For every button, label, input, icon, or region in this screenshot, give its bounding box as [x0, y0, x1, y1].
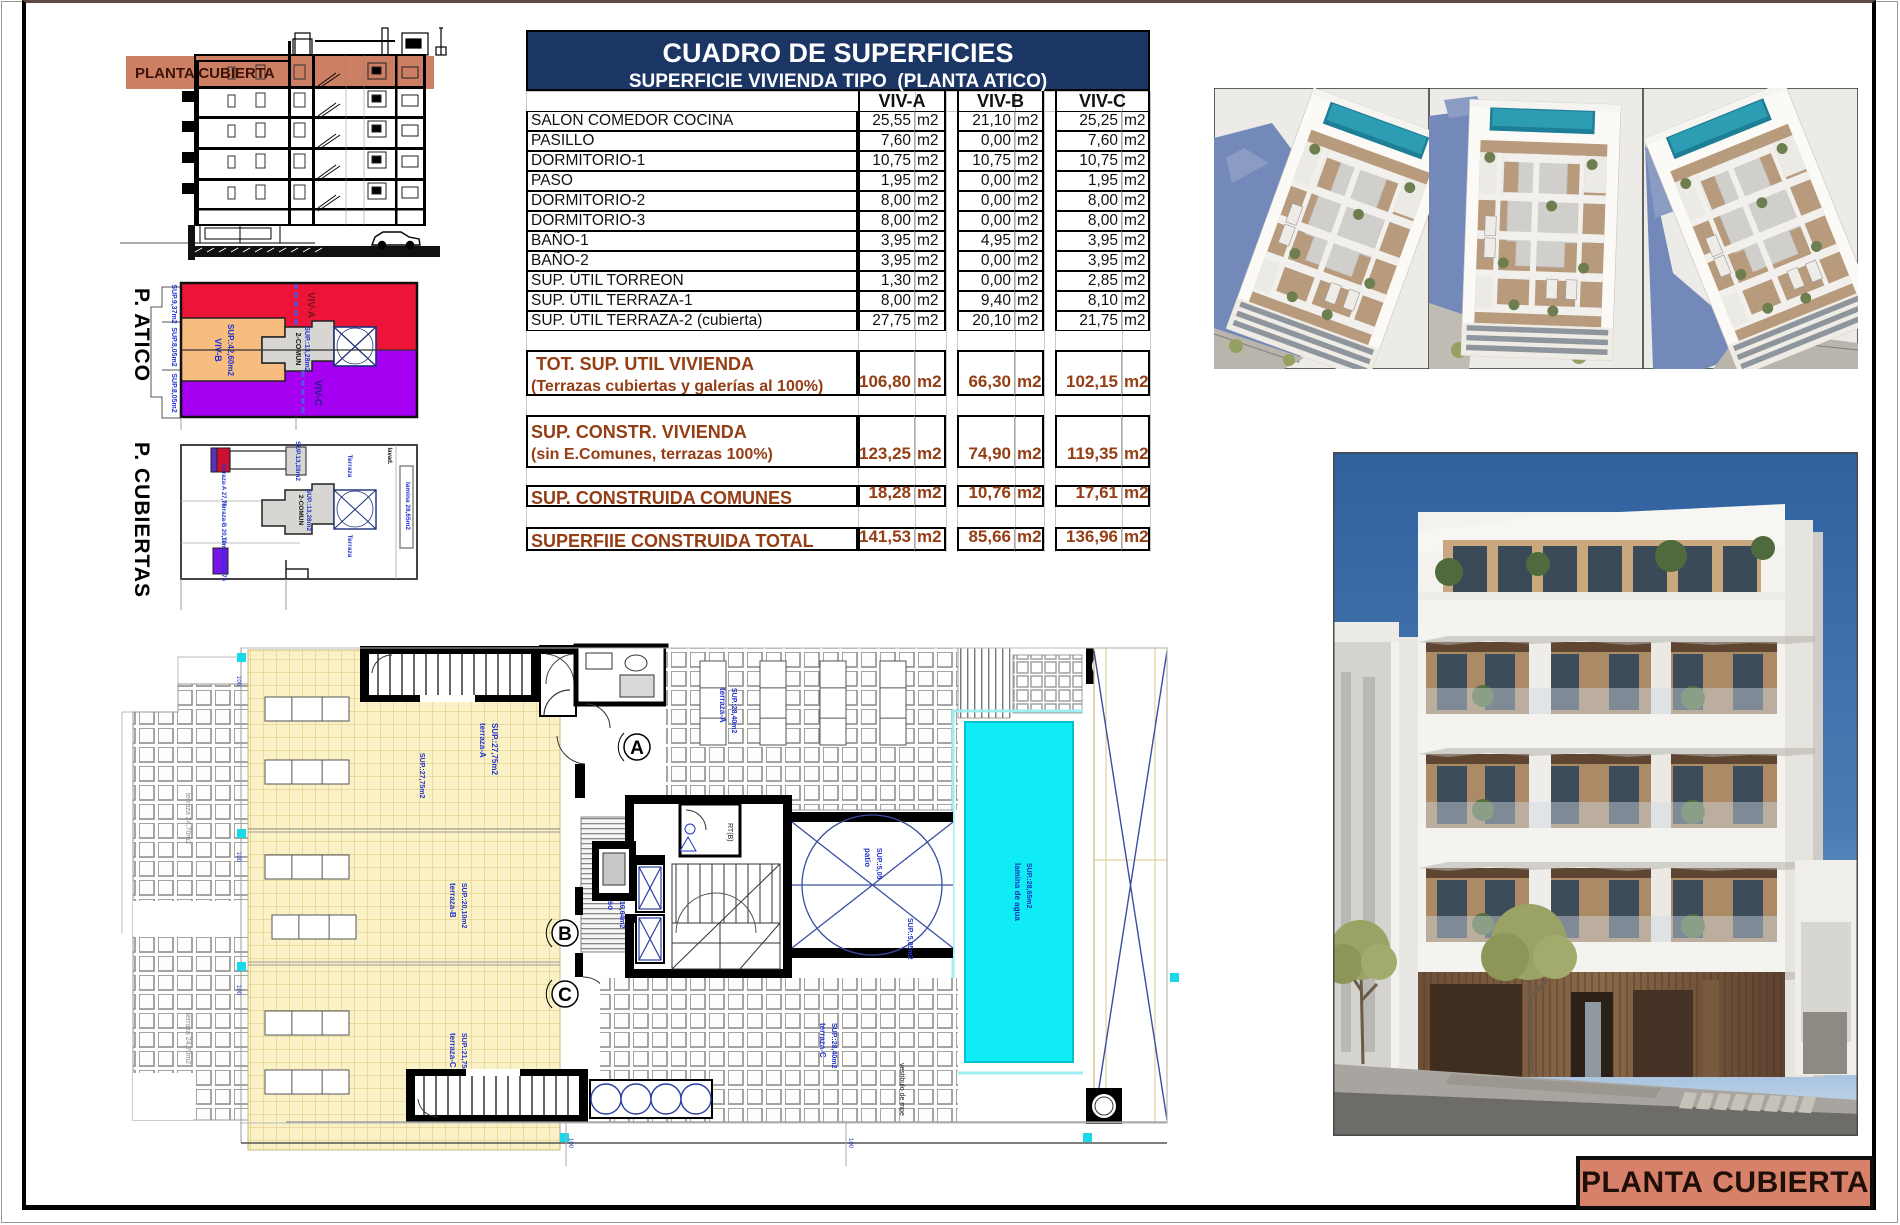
svg-text:terraza-C: terraza-C	[448, 1033, 457, 1068]
svg-text:SUP.8,05m2: SUP.8,05m2	[170, 373, 177, 412]
svg-text:C: C	[558, 985, 572, 1006]
svg-text:P. CUBIERTAS: P. CUBIERTAS	[130, 442, 153, 598]
svg-text:SUP.:27,75m2: SUP.:27,75m2	[490, 723, 499, 775]
svg-text:SUP.8,05m2: SUP.8,05m2	[170, 327, 177, 366]
svg-text:SUP.9,37m2: SUP.9,37m2	[170, 284, 177, 323]
svg-text:SUP.:27,75m2: SUP.:27,75m2	[418, 753, 425, 799]
svg-text:SUP.:5,05m2: SUP.:5,05m2	[906, 918, 913, 960]
svg-text:100: 100	[567, 1138, 573, 1149]
svg-text:VIV-C: VIV-C	[312, 380, 323, 406]
svg-text:100: 100	[235, 676, 241, 687]
svg-text:terraza 24,70m2: terraza 24,70m2	[184, 793, 191, 844]
svg-text:vestibulo de mpe: vestibulo de mpe	[898, 1063, 905, 1116]
svg-text:100: 100	[847, 1138, 853, 1149]
svg-text:SUP.:28,40m2: SUP.:28,40m2	[730, 688, 737, 734]
svg-text:lamina 28,65m2: lamina 28,65m2	[404, 482, 411, 530]
svg-text:SUP.:5,05: SUP.:5,05	[875, 848, 882, 879]
svg-text:Terraza: Terraza	[346, 455, 353, 478]
svg-text:Terraza: Terraza	[346, 535, 353, 558]
svg-text:SUP.:28,40m2: SUP.:28,40m2	[830, 1023, 837, 1069]
svg-text:terraza-A: terraza-A	[718, 688, 727, 723]
svg-text:lavad.: lavad.	[386, 447, 392, 464]
svg-text:100: 100	[235, 852, 241, 863]
svg-text:terraza-B: terraza-B	[448, 883, 457, 918]
svg-text:SUP.:13,28m2: SUP.:13,28m2	[305, 489, 312, 532]
svg-text:SUP.:13,28m2: SUP.:13,28m2	[303, 326, 310, 372]
svg-text:P. ATICO: P. ATICO	[130, 288, 153, 382]
svg-text:RT(B): RT(B)	[726, 823, 733, 842]
svg-text:SUP.:28,65m2: SUP.:28,65m2	[1025, 863, 1032, 909]
svg-text:PLANTA CUBIERTA: PLANTA CUBIERTA	[135, 65, 275, 82]
svg-text:VIV-A: VIV-A	[305, 292, 316, 318]
svg-text:2-COMUN: 2-COMUN	[297, 495, 304, 526]
svg-text:terraza-C: terraza-C	[818, 1023, 827, 1058]
svg-text:B: B	[558, 924, 572, 945]
svg-text:100: 100	[235, 985, 241, 996]
svg-text:terraza-A: terraza-A	[478, 723, 487, 758]
svg-text:Terraza-C 21,75: Terraza-C 21,75	[220, 537, 226, 582]
svg-text:patio: patio	[863, 848, 872, 867]
svg-text:2-COMUN: 2-COMUN	[294, 333, 301, 366]
svg-text:SUP.:20,10m2: SUP.:20,10m2	[460, 883, 467, 929]
svg-text:A: A	[630, 738, 644, 759]
svg-text:lamina de agua: lamina de agua	[1013, 863, 1022, 921]
svg-text:terraza 24,70m2: terraza 24,70m2	[184, 1013, 191, 1064]
svg-text:SUP.13,28m2: SUP.13,28m2	[294, 441, 301, 481]
